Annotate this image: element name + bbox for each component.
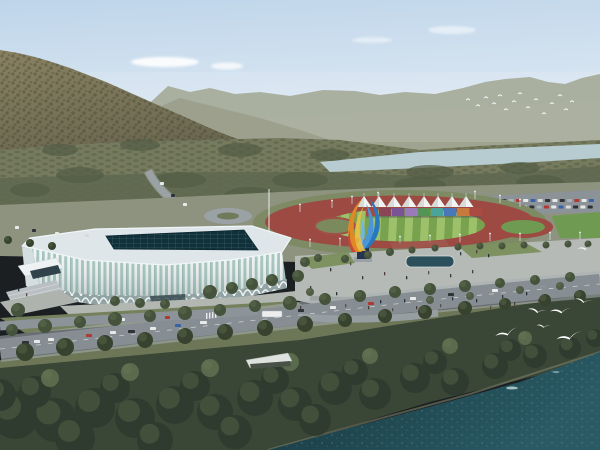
tree-grove bbox=[272, 172, 328, 188]
car bbox=[150, 327, 156, 330]
tree-highlight bbox=[455, 244, 459, 248]
tree-highlight bbox=[109, 313, 117, 321]
tree-highlight bbox=[566, 273, 572, 279]
roundabout-island bbox=[217, 213, 239, 220]
person bbox=[362, 276, 363, 279]
colored-panel bbox=[392, 208, 404, 216]
tree-grove bbox=[120, 139, 160, 151]
tree-highlight bbox=[477, 243, 481, 247]
car bbox=[183, 203, 187, 206]
tree-highlight bbox=[111, 297, 117, 303]
tree-highlight bbox=[425, 351, 438, 364]
person bbox=[300, 306, 301, 309]
tree-highlight bbox=[525, 345, 538, 358]
person bbox=[336, 292, 337, 295]
tree-highlight bbox=[519, 332, 527, 340]
tree-highlight bbox=[39, 320, 47, 328]
car bbox=[368, 302, 374, 305]
tree-highlight bbox=[575, 291, 582, 298]
colored-panel bbox=[379, 208, 391, 216]
tree-highlight bbox=[339, 314, 347, 322]
tree-highlight bbox=[159, 388, 180, 409]
light-lamp bbox=[459, 234, 461, 236]
tree-highlight bbox=[344, 360, 358, 374]
tree-highlight bbox=[540, 295, 547, 302]
tree-grove bbox=[310, 149, 350, 161]
person bbox=[452, 297, 453, 300]
person bbox=[345, 304, 346, 307]
tree-highlight bbox=[138, 333, 147, 342]
person bbox=[428, 271, 429, 274]
tree-highlight bbox=[484, 354, 498, 368]
light-lamp bbox=[429, 235, 431, 237]
parked-car bbox=[545, 199, 550, 202]
car bbox=[55, 232, 59, 235]
light-lamp bbox=[549, 232, 551, 234]
parked-car bbox=[544, 206, 549, 209]
tree-highlight bbox=[301, 406, 319, 424]
car bbox=[298, 309, 304, 312]
tree-highlight bbox=[443, 339, 452, 348]
car bbox=[171, 194, 175, 197]
tree-highlight bbox=[161, 300, 167, 306]
light-lamp bbox=[519, 233, 521, 235]
parked-car bbox=[573, 206, 578, 209]
tree-highlight bbox=[202, 360, 212, 370]
tree-highlight bbox=[49, 242, 53, 246]
tree-highlight bbox=[267, 275, 274, 282]
person bbox=[416, 306, 417, 309]
parked-car bbox=[523, 199, 528, 202]
person bbox=[440, 304, 441, 307]
tree-grove bbox=[42, 144, 78, 156]
light-lamp bbox=[309, 239, 311, 241]
bus bbox=[262, 311, 282, 317]
car bbox=[410, 297, 416, 300]
car bbox=[448, 293, 454, 296]
tree-highlight bbox=[298, 317, 307, 326]
light-lamp bbox=[299, 204, 301, 206]
light-lamp bbox=[339, 238, 341, 240]
tree-highlight bbox=[218, 325, 227, 334]
tree-highlight bbox=[361, 380, 379, 398]
parked-car bbox=[537, 206, 542, 209]
tree-highlight bbox=[365, 251, 369, 255]
tree-grove bbox=[56, 167, 104, 183]
tree-highlight bbox=[293, 271, 300, 278]
tree-highlight bbox=[221, 417, 240, 436]
tree-highlight bbox=[178, 329, 187, 338]
tree-highlight bbox=[499, 243, 503, 247]
car bbox=[492, 289, 498, 292]
tree-highlight bbox=[387, 248, 391, 252]
tree-highlight bbox=[145, 311, 152, 318]
cloud bbox=[428, 26, 476, 34]
tree-highlight bbox=[140, 424, 160, 444]
colored-panel bbox=[444, 208, 456, 216]
tree-highlight bbox=[12, 304, 20, 312]
cloud bbox=[131, 57, 199, 67]
car bbox=[110, 331, 116, 334]
tree-highlight bbox=[543, 242, 547, 246]
aerial-rendering: Aerial rendering of a riverside sports c… bbox=[0, 0, 600, 450]
tree-highlight bbox=[240, 382, 260, 402]
tree-highlight bbox=[432, 245, 436, 249]
light-lamp bbox=[579, 232, 581, 234]
parked-car bbox=[567, 199, 572, 202]
water-glint bbox=[506, 387, 518, 390]
car bbox=[160, 182, 164, 185]
tree-highlight bbox=[496, 279, 502, 285]
tree-highlight bbox=[263, 367, 278, 382]
colored-panel bbox=[470, 208, 482, 216]
car bbox=[34, 340, 40, 343]
car bbox=[85, 234, 89, 237]
light-lamp bbox=[399, 236, 401, 238]
person bbox=[490, 306, 491, 309]
tree-highlight bbox=[98, 336, 107, 345]
person bbox=[460, 252, 461, 255]
tree-grove bbox=[10, 183, 50, 197]
car bbox=[15, 226, 19, 229]
tree-highlight bbox=[460, 281, 467, 288]
light-lamp bbox=[377, 192, 379, 194]
person bbox=[380, 300, 381, 303]
person bbox=[476, 250, 477, 253]
tree-highlight bbox=[227, 283, 234, 290]
water-glint bbox=[553, 371, 560, 373]
colored-panel bbox=[405, 208, 417, 216]
tree-highlight bbox=[501, 340, 513, 352]
light-lamp bbox=[489, 233, 491, 235]
person bbox=[384, 272, 385, 275]
parked-car bbox=[551, 206, 556, 209]
car bbox=[165, 316, 170, 319]
light-lamp bbox=[474, 191, 476, 193]
tree-grove bbox=[500, 162, 540, 174]
colored-panel bbox=[457, 208, 469, 216]
tree-highlight bbox=[27, 239, 31, 243]
scene-svg: Aerial rendering of a riverside sports c… bbox=[0, 0, 600, 450]
person bbox=[472, 270, 473, 273]
light-lamp bbox=[351, 196, 353, 198]
tree-highlight bbox=[443, 369, 458, 384]
tree-highlight bbox=[179, 307, 187, 315]
tree-highlight bbox=[57, 339, 67, 349]
tree-highlight bbox=[7, 325, 14, 332]
tree-highlight bbox=[307, 288, 311, 292]
car bbox=[330, 306, 336, 309]
secondary-field bbox=[501, 220, 545, 234]
tree-highlight bbox=[122, 364, 132, 374]
tree-highlight bbox=[5, 236, 9, 240]
person bbox=[26, 293, 27, 296]
tree-highlight bbox=[402, 365, 419, 382]
tree-highlight bbox=[215, 305, 222, 312]
person bbox=[368, 306, 369, 309]
tree-highlight bbox=[182, 373, 199, 390]
tree-highlight bbox=[355, 291, 362, 298]
tree-highlight bbox=[75, 317, 82, 324]
tree-highlight bbox=[517, 286, 521, 290]
tree-highlight bbox=[390, 287, 397, 294]
parked-car bbox=[531, 199, 536, 202]
tree-grove bbox=[218, 143, 262, 157]
tree-highlight bbox=[42, 370, 52, 380]
person bbox=[330, 268, 331, 271]
tree-highlight bbox=[17, 344, 27, 354]
tree-highlight bbox=[321, 373, 340, 392]
stand-structure bbox=[366, 216, 482, 218]
tree-highlight bbox=[281, 389, 300, 408]
person bbox=[350, 262, 351, 265]
person bbox=[18, 288, 19, 291]
tree-highlight bbox=[58, 420, 80, 442]
tree-highlight bbox=[467, 292, 471, 296]
tree-highlight bbox=[557, 282, 561, 286]
tree-highlight bbox=[250, 301, 257, 308]
tree-highlight bbox=[315, 254, 319, 258]
parked-car bbox=[574, 199, 579, 202]
car bbox=[175, 324, 181, 327]
east-green-field bbox=[552, 212, 600, 238]
tree-highlight bbox=[118, 400, 140, 422]
parked-car bbox=[552, 199, 557, 202]
light-lamp bbox=[499, 195, 501, 197]
tree-highlight bbox=[258, 321, 267, 330]
parked-car bbox=[582, 199, 587, 202]
person bbox=[514, 302, 515, 305]
parked-car bbox=[560, 199, 565, 202]
light-lamp bbox=[331, 200, 333, 202]
person bbox=[476, 299, 477, 302]
tree-highlight bbox=[427, 296, 431, 300]
tree-highlight bbox=[363, 349, 372, 358]
tree-highlight bbox=[521, 242, 525, 246]
car bbox=[200, 321, 207, 324]
car bbox=[86, 334, 92, 337]
tree-highlight bbox=[78, 390, 100, 412]
car bbox=[128, 330, 135, 333]
person bbox=[488, 254, 489, 257]
tree-highlight bbox=[247, 279, 254, 286]
colored-panel-wall bbox=[366, 208, 482, 216]
parked-car bbox=[559, 206, 564, 209]
tree-highlight bbox=[320, 294, 327, 301]
tree-grove bbox=[406, 165, 454, 179]
colored-panel bbox=[418, 208, 430, 216]
tree-highlight bbox=[21, 378, 39, 396]
car bbox=[48, 338, 54, 341]
parked-car bbox=[589, 199, 594, 202]
parked-car bbox=[538, 199, 543, 202]
tree-highlight bbox=[379, 310, 387, 318]
tree-highlight bbox=[204, 286, 212, 294]
colored-panel bbox=[431, 208, 443, 216]
tree-highlight bbox=[587, 330, 597, 340]
tree-highlight bbox=[459, 302, 467, 310]
tree-highlight bbox=[136, 299, 142, 305]
tree-highlight bbox=[425, 284, 432, 291]
person bbox=[404, 299, 405, 302]
person bbox=[502, 295, 503, 298]
person bbox=[392, 308, 393, 311]
tree-highlight bbox=[531, 276, 537, 282]
tree-highlight bbox=[565, 241, 569, 245]
crosswalk-stripe bbox=[209, 313, 210, 319]
tree-highlight bbox=[301, 258, 307, 264]
parked-car bbox=[580, 206, 585, 209]
reflecting-pool bbox=[406, 256, 454, 267]
cloud bbox=[211, 63, 243, 70]
tree-highlight bbox=[409, 247, 413, 251]
tree-highlight bbox=[561, 338, 573, 350]
tree-highlight bbox=[419, 306, 427, 314]
light-lamp bbox=[519, 199, 521, 201]
crosswalk-stripe bbox=[206, 313, 207, 319]
tree-highlight bbox=[585, 241, 589, 245]
tree-highlight bbox=[102, 375, 119, 392]
car bbox=[540, 285, 546, 288]
tree-highlight bbox=[500, 299, 507, 306]
tree-highlight bbox=[284, 297, 292, 305]
parked-car bbox=[566, 206, 571, 209]
car bbox=[32, 229, 36, 232]
tree-highlight bbox=[342, 255, 346, 259]
parked-car bbox=[588, 206, 593, 209]
person bbox=[450, 274, 451, 277]
person bbox=[406, 276, 407, 279]
crosswalk-stripe bbox=[212, 312, 213, 318]
person bbox=[526, 292, 527, 295]
cloud bbox=[352, 37, 392, 43]
